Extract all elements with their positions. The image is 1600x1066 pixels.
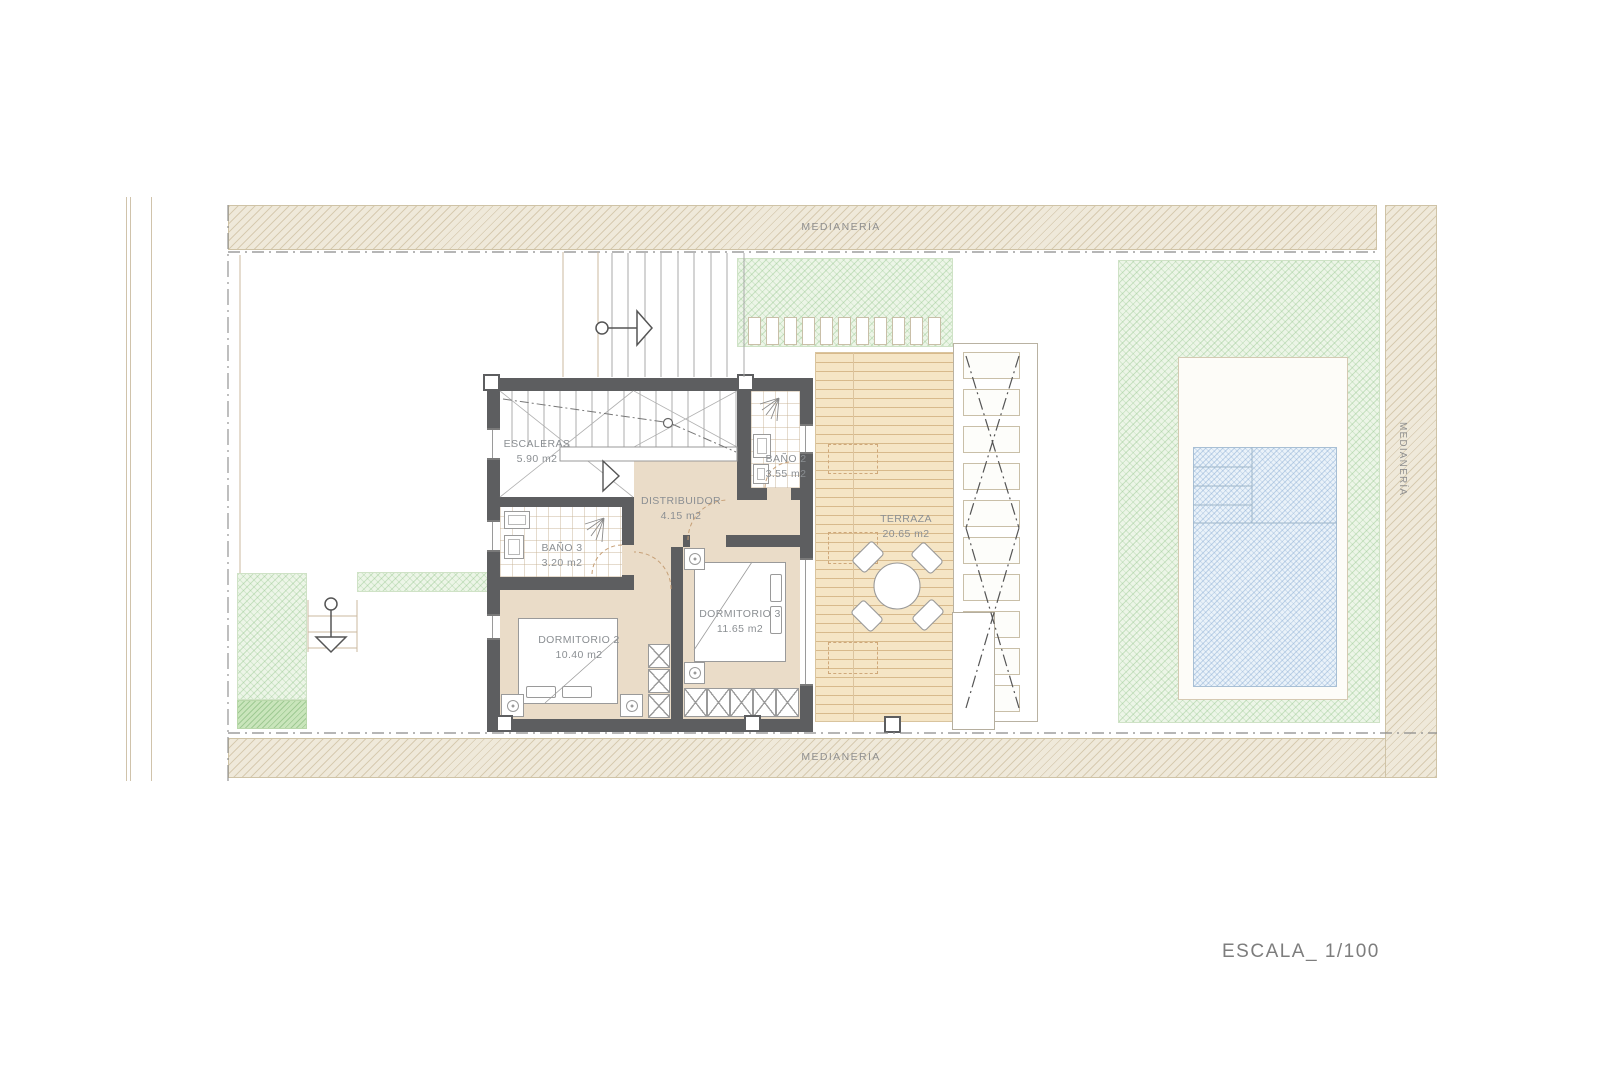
terrace-chair — [851, 600, 884, 633]
room-label-dormitorio2: DORMITORIO 2 10.40 m2 — [538, 633, 620, 662]
room-area: 4.15 m2 — [641, 509, 721, 524]
stairs-up-arrow-icon — [596, 311, 652, 345]
room-name: ESCALERAS — [504, 437, 571, 452]
room-label-dormitorio3: DORMITORIO 3 11.65 m2 — [699, 607, 781, 636]
exterior-stairs-up — [563, 252, 744, 377]
pergola-bracing-lines — [966, 356, 1019, 708]
room-name: DISTRIBUIDOR — [641, 494, 721, 509]
stairs-down-arrow-icon — [316, 598, 346, 652]
room-area: 10.40 m2 — [538, 648, 620, 663]
room-area: 11.65 m2 — [699, 622, 781, 637]
linework-overlay — [0, 0, 1600, 1066]
room-name: DORMITORIO 2 — [538, 633, 620, 648]
terrace-chair — [911, 542, 944, 575]
room-label-escaleras: ESCALERAS 5.90 m2 — [504, 437, 571, 466]
room-label-terraza: TERRAZA 20.65 m2 — [880, 512, 932, 541]
scale-label: ESCALA_ 1/100 — [1222, 941, 1380, 963]
terrace-chair — [912, 599, 945, 632]
room-label-bano3: BAÑO 3 3.20 m2 — [542, 541, 583, 570]
terrace-chair — [852, 541, 885, 574]
room-name: BAÑO 2 — [766, 452, 807, 467]
room-area: 3.55 m2 — [766, 467, 807, 482]
room-label-distribuidor: DISTRIBUIDOR 4.15 m2 — [641, 494, 721, 523]
party-wall-label-top: MEDIANERÍA — [801, 221, 880, 233]
party-wall-label-right: MEDIANERÍA — [1397, 422, 1408, 496]
pool-step-lines — [1193, 447, 1337, 523]
terrace-table — [874, 563, 920, 609]
room-label-bano2: BAÑO 2 3.55 m2 — [766, 452, 807, 481]
room-name: DORMITORIO 3 — [699, 607, 781, 622]
room-name: BAÑO 3 — [542, 541, 583, 556]
plot-boundary-lines — [228, 205, 1437, 782]
room-area: 5.90 m2 — [504, 452, 571, 467]
room-area: 3.20 m2 — [542, 556, 583, 571]
room-area: 20.65 m2 — [880, 527, 932, 542]
door-swing-arcs — [592, 462, 791, 589]
room-name: TERRAZA — [880, 512, 932, 527]
stair-direction-arrow-icon — [603, 461, 619, 491]
exterior-stairs-down — [308, 598, 357, 652]
terrace-table-set — [851, 541, 945, 633]
floor-plan-sheet: ESCALERAS 5.90 m2 BAÑO 2 3.55 m2 DISTRIB… — [0, 0, 1600, 1066]
party-wall-label-bottom: MEDIANERÍA — [801, 751, 880, 763]
